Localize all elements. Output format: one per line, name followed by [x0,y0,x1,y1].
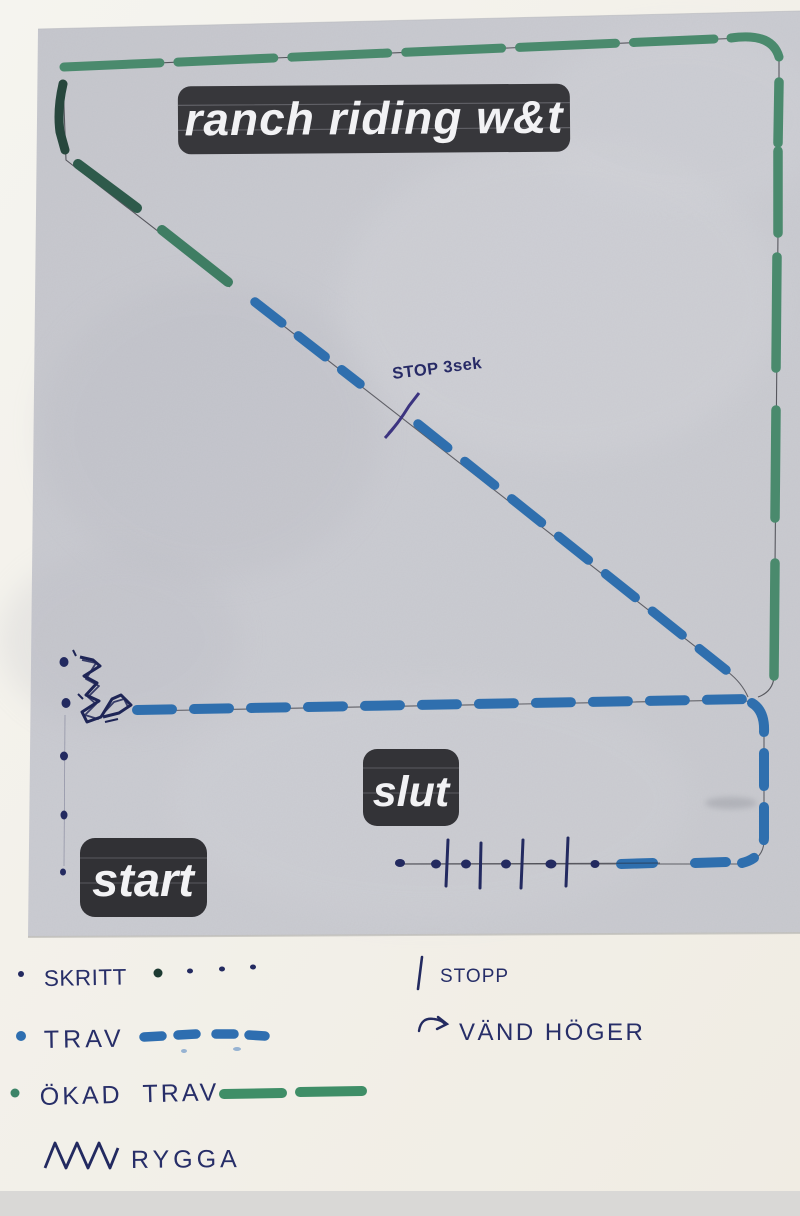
svg-text:SKRITT: SKRITT [44,965,127,991]
svg-text:TRAV: TRAV [44,1025,125,1054]
svg-text:RYGGA: RYGGA [131,1145,241,1174]
svg-text:slut: slut [373,768,451,816]
svg-text:VÄND HÖGER: VÄND HÖGER [459,1019,645,1046]
svg-text:STOPP: STOPP [440,966,509,987]
svg-text:ÖKAD TRAV: ÖKAD TRAV [39,1078,219,1111]
svg-text:ranch riding w&t: ranch riding w&t [184,91,564,146]
svg-text:start: start [92,853,196,906]
